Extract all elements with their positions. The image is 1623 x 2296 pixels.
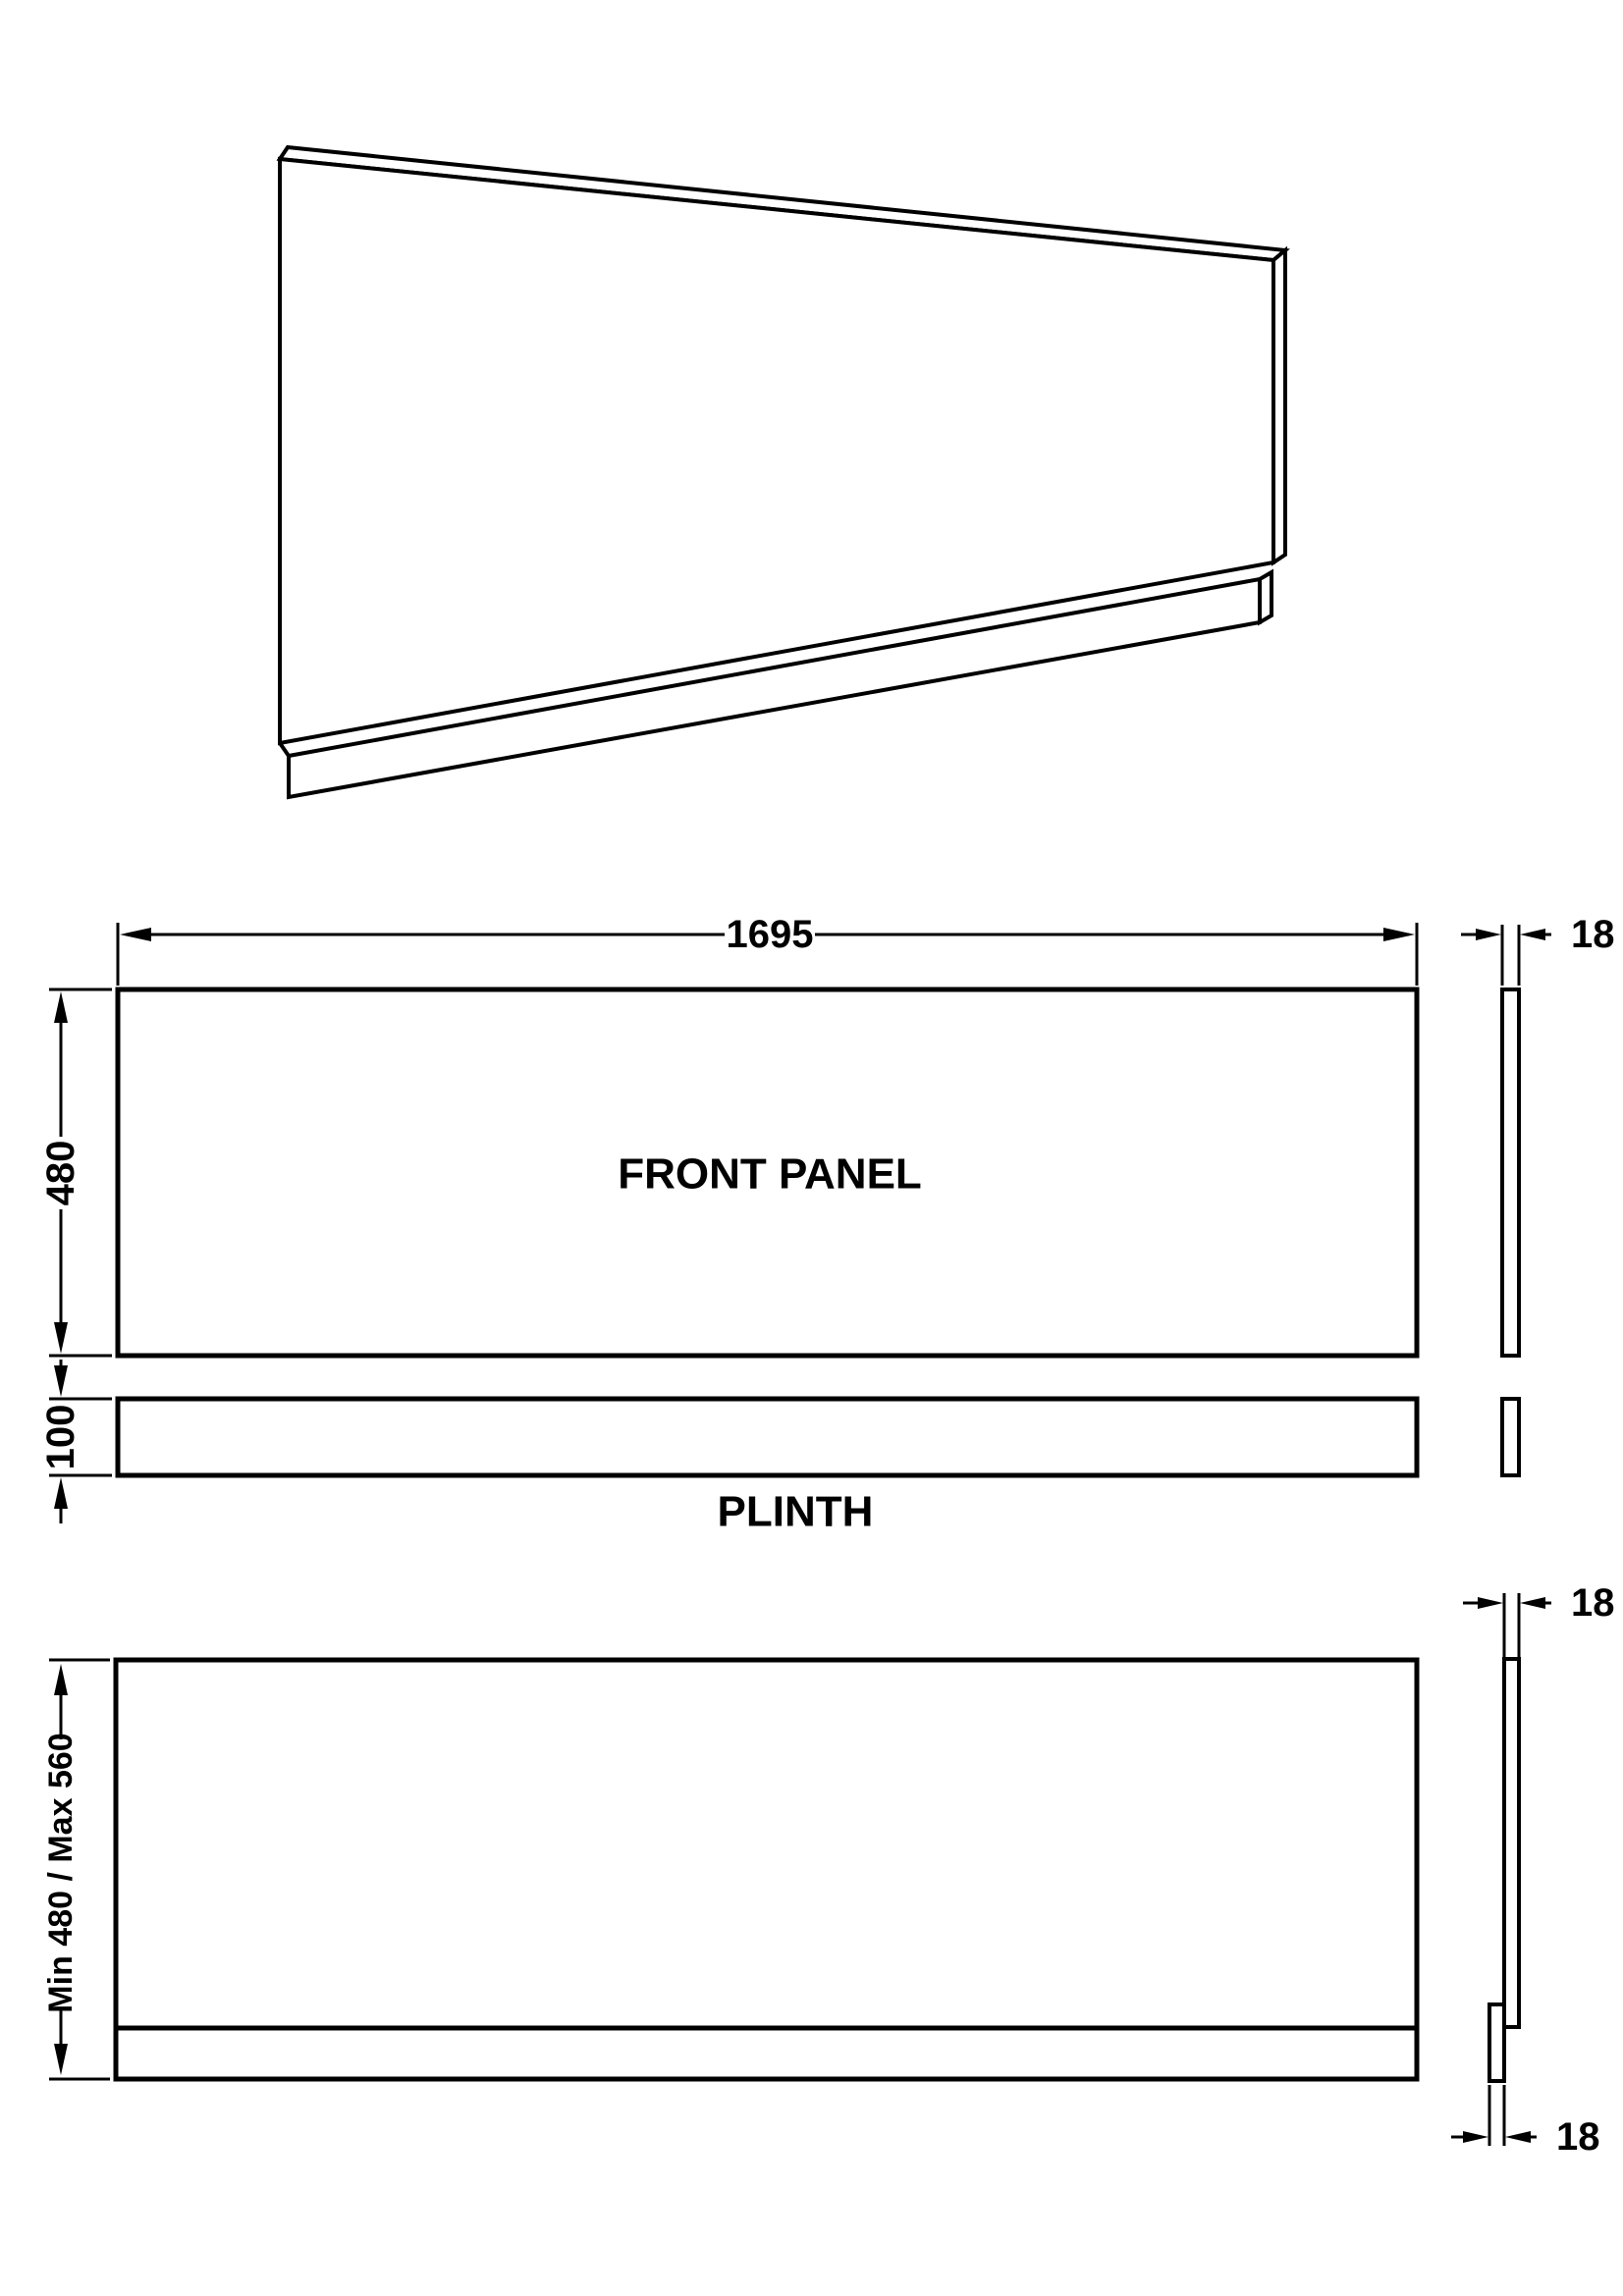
dim-panel-height: 480: [39, 989, 112, 1356]
perspective-view: [280, 147, 1285, 797]
fitted-panel-outline: [116, 1660, 1417, 2079]
fitted-plinth-side-view: [1489, 2004, 1504, 2081]
plinth-side-view: [1502, 1399, 1519, 1475]
arrowhead-left: [1505, 2131, 1531, 2143]
panel-side-view: [1502, 989, 1519, 1356]
panel-3d-front-face: [280, 159, 1273, 743]
dim-fitted-plinth-thickness: 18: [1451, 2085, 1600, 2159]
dim-panel-thickness-value: 18: [1571, 913, 1615, 956]
plinth-label: PLINTH: [718, 1488, 874, 1536]
dim-panel-thickness: 18: [1461, 913, 1615, 986]
dim-fitted-panel-thickness: 18: [1463, 1581, 1615, 1657]
arrowhead-right: [1463, 2131, 1488, 2143]
drawing-canvas: 1695 FRONT PANEL 480 100 PLINTH: [0, 0, 1623, 2296]
bath-panel-technical-drawing: 1695 FRONT PANEL 480 100 PLINTH: [0, 0, 1623, 2296]
front-panel-label: FRONT PANEL: [618, 1150, 922, 1199]
arrowhead-up: [54, 1664, 68, 1695]
arrowhead-left: [1520, 1597, 1545, 1609]
arrowhead-down: [54, 2044, 68, 2075]
dim-plinth-height-value: 100: [39, 1405, 82, 1470]
dim-panel-width: 1695: [118, 913, 1417, 986]
dim-fitted-height-value: Min 480 / Max 560: [42, 1733, 80, 2012]
arrowhead-down: [54, 1322, 68, 1354]
arrowhead-right: [1383, 928, 1415, 941]
dim-panel-height-value: 480: [39, 1141, 82, 1206]
fitted-panel-side-view: [1504, 1659, 1519, 2027]
arrowhead-right: [1478, 1597, 1503, 1609]
arrowhead-down: [54, 1365, 68, 1397]
arrowhead-up: [54, 991, 68, 1023]
dim-fitted-plinth-thickness-value: 18: [1556, 2115, 1600, 2159]
front-view-section: 1695 FRONT PANEL 480 100 PLINTH: [39, 913, 1615, 1536]
arrowhead-left: [120, 928, 151, 941]
fitted-view-section: Min 480 / Max 560 18 18: [42, 1581, 1615, 2159]
arrowhead-up: [54, 1477, 68, 1509]
arrowhead-left: [1520, 929, 1545, 940]
dim-fitted-panel-thickness-value: 18: [1571, 1581, 1615, 1625]
panel-3d-plinth-connector: [280, 743, 289, 756]
dim-fitted-height: Min 480 / Max 560: [42, 1660, 110, 2079]
arrowhead-right: [1476, 929, 1501, 940]
dim-plinth-height: 100: [39, 1360, 112, 1523]
plinth-outline: [118, 1399, 1417, 1475]
dim-panel-width-value: 1695: [727, 913, 814, 956]
